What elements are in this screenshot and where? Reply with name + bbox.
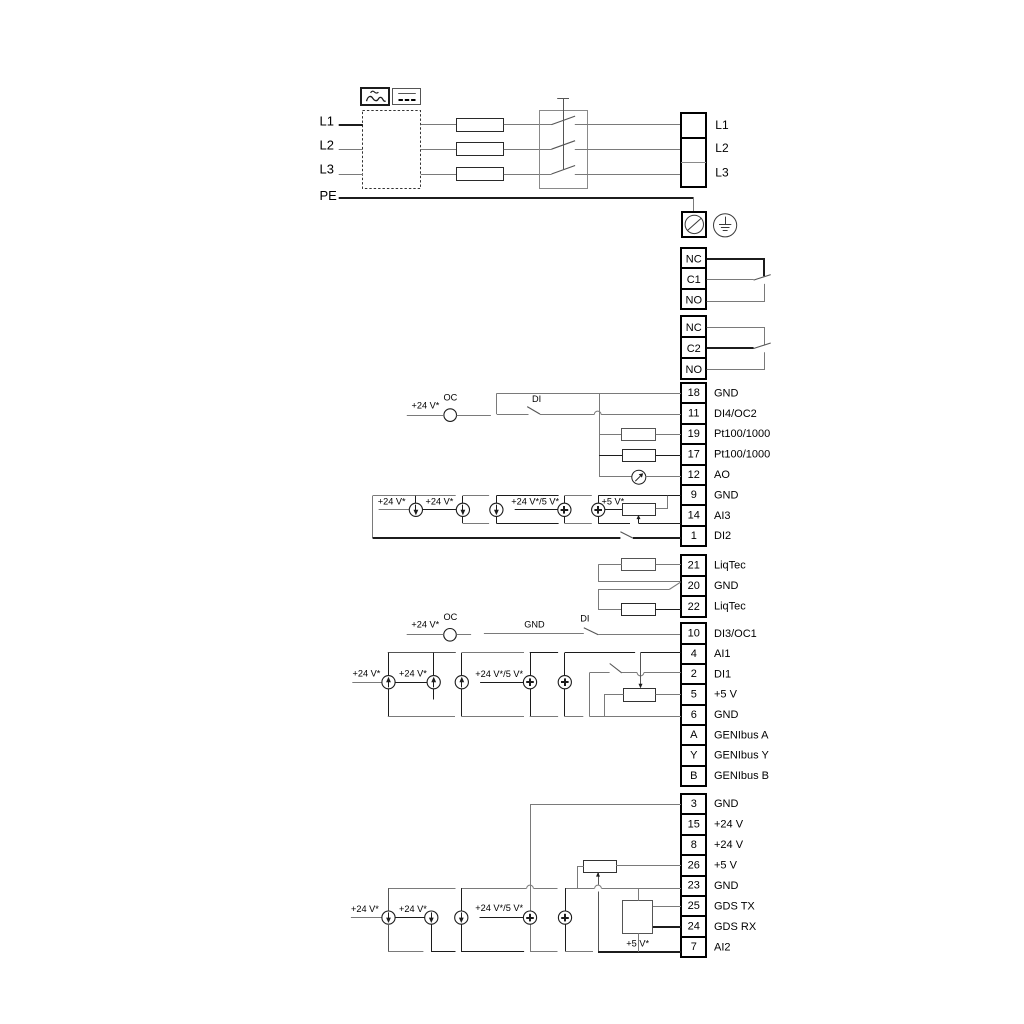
svg-text:DI1: DI1	[714, 668, 731, 680]
svg-text:PE: PE	[320, 188, 338, 203]
svg-text:AO: AO	[714, 469, 730, 481]
svg-text:C2: C2	[687, 343, 701, 355]
svg-text:OC: OC	[444, 392, 458, 402]
svg-text:+5 V*: +5 V*	[626, 939, 649, 949]
svg-text:18: 18	[688, 387, 700, 399]
svg-text:+5 V: +5 V	[714, 689, 738, 701]
svg-text:19: 19	[688, 428, 700, 440]
svg-text:6: 6	[691, 709, 697, 721]
svg-text:AI3: AI3	[714, 510, 731, 522]
svg-text:15: 15	[688, 818, 700, 830]
svg-text:4: 4	[691, 648, 697, 660]
svg-text:20: 20	[688, 580, 700, 592]
svg-text:8: 8	[691, 839, 697, 851]
svg-text:24: 24	[688, 921, 700, 933]
svg-text:+24 V*: +24 V*	[378, 497, 406, 507]
svg-text:12: 12	[688, 469, 700, 481]
svg-text:DI4/OC2: DI4/OC2	[714, 408, 757, 420]
svg-text:DI: DI	[532, 394, 541, 404]
svg-text:+24 V*/5 V*: +24 V*/5 V*	[475, 669, 523, 679]
svg-text:26: 26	[688, 859, 700, 871]
svg-text:L1: L1	[320, 114, 334, 129]
svg-text:1: 1	[691, 530, 697, 542]
svg-text:L3: L3	[715, 165, 729, 179]
svg-text:GND: GND	[714, 798, 739, 810]
svg-text:+24 V: +24 V	[714, 839, 744, 851]
svg-text:DI2: DI2	[714, 530, 731, 542]
svg-text:LiqTec: LiqTec	[714, 560, 746, 572]
svg-text:L2: L2	[320, 138, 334, 153]
svg-text:GDS RX: GDS RX	[714, 921, 757, 933]
svg-text:7: 7	[691, 941, 697, 953]
svg-text:L2: L2	[715, 141, 729, 155]
svg-text:NC: NC	[686, 322, 702, 334]
svg-text:NC: NC	[686, 254, 702, 266]
svg-text:DI3/OC1: DI3/OC1	[714, 628, 757, 640]
svg-text:AI2: AI2	[714, 941, 731, 953]
svg-text:10: 10	[688, 628, 700, 640]
svg-text:+24 V*: +24 V*	[351, 904, 379, 914]
svg-text:L1: L1	[715, 118, 729, 132]
svg-text:C1: C1	[687, 274, 701, 286]
svg-text:2: 2	[691, 668, 697, 680]
svg-text:NO: NO	[686, 295, 703, 307]
svg-text:GND: GND	[714, 709, 739, 721]
svg-text:DI: DI	[580, 614, 589, 624]
svg-text:+24 V*: +24 V*	[412, 400, 440, 410]
svg-text:GND: GND	[524, 620, 545, 630]
svg-text:L3: L3	[320, 162, 334, 177]
svg-text:NO: NO	[686, 364, 703, 376]
svg-text:+24 V*: +24 V*	[411, 620, 439, 630]
svg-text:GENIbus A: GENIbus A	[714, 729, 769, 741]
svg-text:GND: GND	[714, 580, 739, 592]
svg-text:+24 V*: +24 V*	[426, 497, 454, 507]
svg-text:OC: OC	[444, 612, 458, 622]
svg-text:+24 V*: +24 V*	[399, 668, 427, 678]
svg-text:GDS TX: GDS TX	[714, 900, 755, 912]
svg-text:GENIbus Y: GENIbus Y	[714, 750, 769, 762]
svg-text:GND: GND	[714, 489, 739, 501]
svg-text:5: 5	[691, 689, 697, 701]
svg-text:Pt100/1000: Pt100/1000	[714, 428, 770, 440]
svg-text:A: A	[690, 729, 698, 741]
svg-text:+24 V*/5 V*: +24 V*/5 V*	[511, 497, 559, 507]
svg-text:+5 V: +5 V	[714, 860, 738, 872]
svg-text:+24 V*/5 V*: +24 V*/5 V*	[475, 903, 523, 913]
svg-text:3: 3	[691, 798, 697, 810]
svg-text:B: B	[690, 770, 697, 782]
svg-text:GENIbus B: GENIbus B	[714, 770, 769, 782]
svg-text:21: 21	[688, 559, 700, 571]
svg-text:17: 17	[688, 448, 700, 460]
svg-text:+24 V*: +24 V*	[399, 904, 427, 914]
svg-text:LiqTec: LiqTec	[714, 600, 746, 612]
svg-text:+24 V*: +24 V*	[353, 668, 381, 678]
svg-text:Pt100/1000: Pt100/1000	[714, 449, 770, 461]
svg-text:14: 14	[688, 510, 700, 522]
svg-text:22: 22	[688, 601, 700, 613]
svg-text:9: 9	[691, 489, 697, 501]
svg-text:GND: GND	[714, 880, 739, 892]
svg-text:GND: GND	[714, 387, 739, 399]
svg-text:25: 25	[688, 900, 700, 912]
svg-text:Y: Y	[690, 750, 698, 762]
svg-text:11: 11	[688, 408, 699, 420]
svg-text:+5 V*: +5 V*	[602, 497, 625, 507]
svg-text:+24 V: +24 V	[714, 819, 744, 831]
svg-text:23: 23	[688, 880, 700, 892]
svg-text:AI1: AI1	[714, 648, 731, 660]
